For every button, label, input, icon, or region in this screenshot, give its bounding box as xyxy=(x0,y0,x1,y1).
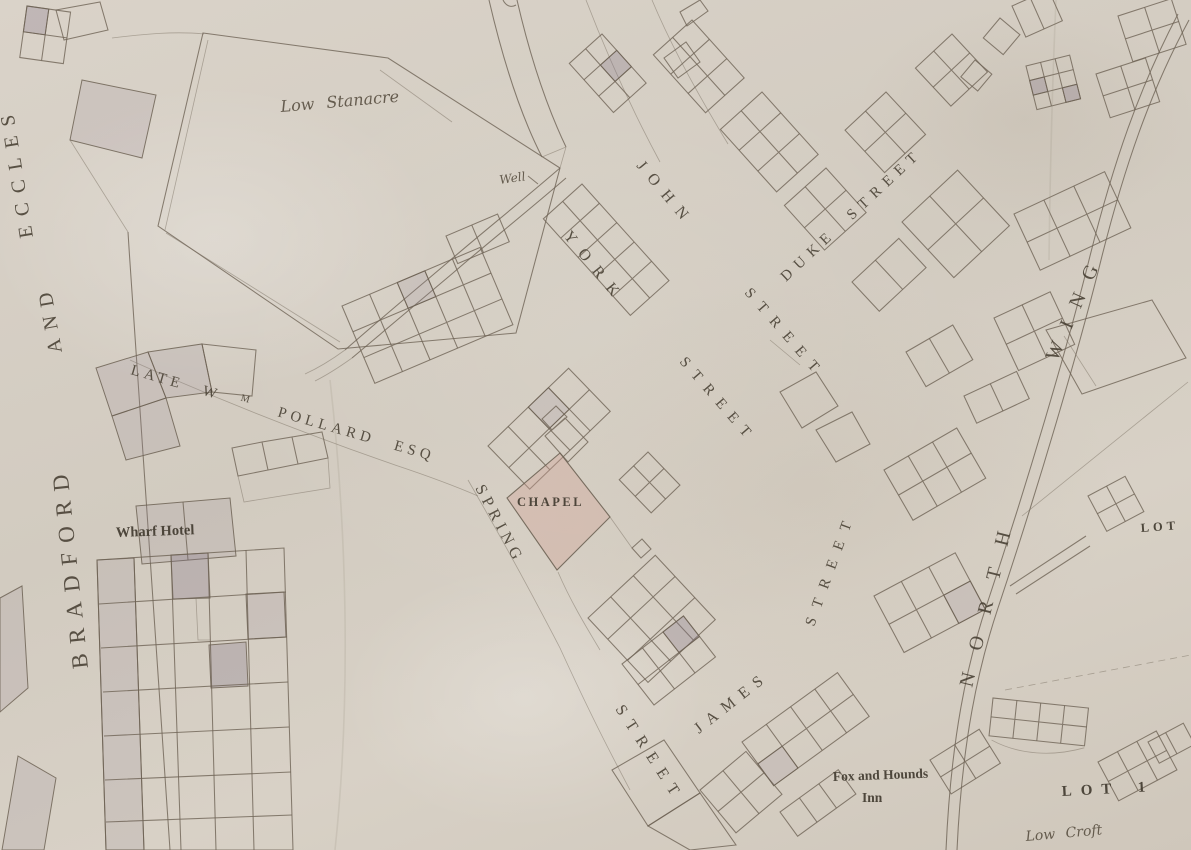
label-pollard: LATE W M POLLARD ESQ xyxy=(129,358,438,465)
label-fox-and-hounds: Fox and Hounds xyxy=(833,766,929,784)
label-well: Well xyxy=(498,169,526,187)
building-cluster-lot xyxy=(1088,476,1144,531)
building-strip-york-john xyxy=(543,184,669,315)
street-label-spring-street: STREET xyxy=(612,702,688,806)
building-cluster-top-left xyxy=(20,2,204,232)
east-parcels xyxy=(1005,300,1191,690)
street-label-york: YORK xyxy=(560,228,629,308)
john-street-edges xyxy=(586,0,728,162)
street-label-james: JAMES xyxy=(691,668,773,737)
street-label-and: AND xyxy=(33,282,67,355)
building-block-east-of-chapel xyxy=(619,452,680,513)
street-label-john-street: STREET xyxy=(741,285,829,382)
building-block-h1c xyxy=(930,729,1000,794)
street-label-bradford: BRADFORD xyxy=(47,463,93,670)
building-block-e1 xyxy=(1118,0,1186,62)
low-stanacre-field xyxy=(158,33,560,349)
street-label-james-street: STREET xyxy=(803,509,859,628)
paper-crease-1 xyxy=(330,380,345,850)
label-chapel: CHAPEL xyxy=(517,495,584,509)
flag-stem xyxy=(610,517,632,548)
street-label-york-street: STREET xyxy=(676,354,760,447)
building-block-f3 xyxy=(964,371,1029,423)
building-block-f1 xyxy=(1014,172,1131,270)
building-block-duke-se2 xyxy=(852,238,926,311)
top-lane xyxy=(489,0,566,168)
label-lot: LOT xyxy=(1140,518,1179,535)
label-fox-and-hounds-inn: Inn xyxy=(862,790,883,805)
building-block-h3 xyxy=(884,428,986,520)
label-pollard-esq: POLLARD ESQ xyxy=(276,405,437,465)
field-pens xyxy=(232,432,330,502)
street-label-john: JOHN xyxy=(633,158,698,231)
building-block-james-west xyxy=(622,616,715,705)
label-lot-1: LOT 1 xyxy=(1061,779,1154,800)
building-block-duke-se xyxy=(902,170,1009,277)
building-single-d xyxy=(961,60,992,91)
flag-parcel xyxy=(632,539,651,558)
label-low-croft: Low Croft xyxy=(1024,822,1103,845)
street-label-duke-street: DUKE STREET xyxy=(778,145,926,285)
building-block-spring-east xyxy=(588,555,715,682)
building-singles-james-north xyxy=(770,340,870,462)
fan-parcel xyxy=(988,698,1089,758)
building-block-e2 xyxy=(1096,58,1160,118)
building-cluster-john-top xyxy=(569,34,646,112)
building-block-d2 xyxy=(915,34,987,106)
building-block-b xyxy=(720,92,818,192)
building-block-north-of-pollard xyxy=(342,247,513,383)
building-block-h5 xyxy=(906,325,973,387)
building-single-c xyxy=(983,18,1020,55)
paper-crease-2 xyxy=(1049,0,1056,260)
map-linework: BRADFORD AND ECCLES YORK STREET JOHN STR… xyxy=(0,0,1191,850)
street-label-eccles: ECCLES xyxy=(0,103,38,239)
label-pollard-m: M xyxy=(239,393,255,407)
lane-to-well xyxy=(305,168,566,381)
label-low-stanacre: Low Stanacre xyxy=(279,87,400,116)
historic-map: BRADFORD AND ECCLES YORK STREET JOHN STR… xyxy=(0,0,1191,850)
chapel-path xyxy=(558,572,600,650)
label-wharf-hotel: Wharf Hotel xyxy=(116,522,195,541)
terrace-block xyxy=(97,548,293,850)
